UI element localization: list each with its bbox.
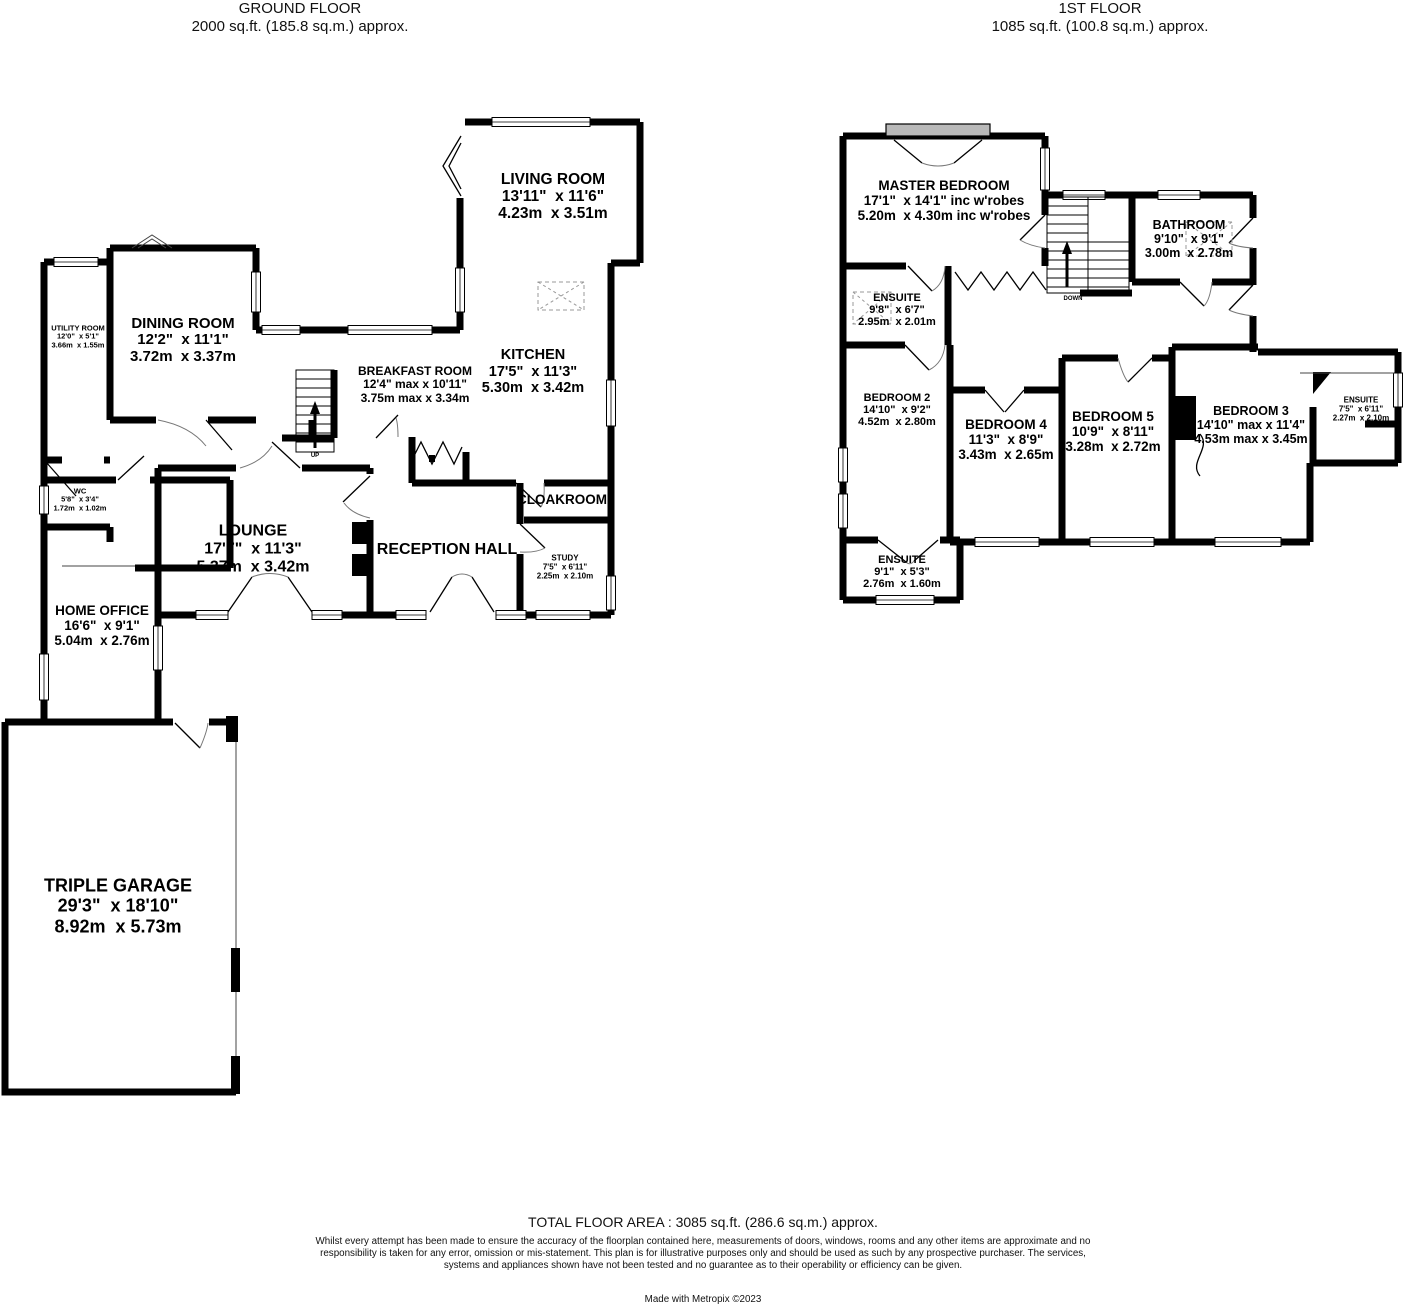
room-label-bathroom: BATHROOM9'10" x 9'1"3.00m x 2.78m	[1145, 190, 1233, 288]
chimney-icon	[1174, 396, 1196, 440]
floorplan-page: GROUND FLOOR 2000 sq.ft. (185.8 sq.m.) a…	[0, 0, 1406, 1313]
room-label-wc: WC5'8" x 3'4"1.72m x 1.02m	[54, 471, 107, 530]
door-leaf-icon	[1313, 372, 1331, 394]
room-label-ensuite-right: ENSUITE7'5" x 6'11"2.27m x 2.10m	[1333, 379, 1389, 442]
room-label-cloakroom: CLOAKROOM	[517, 462, 607, 538]
room-label-bedroom-5: BEDROOM 510'9" x 8'11"3.28m x 2.72m	[1065, 379, 1160, 485]
wardrobe-icon	[955, 272, 1046, 290]
stairs-up-label: UP	[311, 453, 319, 459]
stairs-down	[1047, 197, 1129, 293]
room-label-master-bedroom: MASTER BEDROOM17'1" x 14'1" inc w'robes5…	[858, 148, 1031, 254]
juliet-balcony-icon	[886, 124, 990, 136]
room-label-triple-garage: TRIPLE GARAGE29'3" x 18'10"8.92m x 5.73m	[44, 835, 192, 976]
room-label-study: STUDY7'5" x 6'11"2.25m x 2.10m	[537, 537, 593, 600]
room-label-ensuite-bottom: ENSUITE9'1" x 5'3"2.76m x 1.60m	[863, 529, 941, 615]
room-label-living-room: LIVING ROOM13'11" x 11'6"4.23m x 3.51m	[498, 136, 607, 258]
room-label-reception-hall: RECEPTION HALL	[377, 505, 517, 595]
credit-text: Made with Metropix ©2023	[303, 1294, 1103, 1305]
room-label-bedroom-2: BEDROOM 214'10" x 9'2"4.52m x 2.80m	[858, 367, 936, 453]
room-label-utility-room: UTILITY ROOM12'0" x 5'1"3.66m x 1.55m	[51, 308, 105, 367]
disclaimer-text: Whilst every attempt has been made to en…	[313, 1236, 1093, 1272]
stairs-down-label: DOWN	[1064, 296, 1083, 302]
room-label-kitchen: KITCHEN17'5" x 11'3"5.30m x 3.42m	[482, 315, 584, 429]
room-label-bedroom-4: BEDROOM 411'3" x 8'9"3.43m x 2.65m	[958, 387, 1053, 493]
skylight-icon	[538, 282, 584, 310]
room-label-breakfast-room: BREAKFAST ROOM12'4" max x 10'11"3.75m ma…	[358, 338, 472, 432]
room-label-ensuite-master: ENSUITE9'8" x 6'7"2.95m x 2.01m	[858, 267, 936, 353]
room-label-lounge: LOUNGE17'7" x 11'3"5.37m x 3.42m	[197, 486, 310, 611]
total-floor-area: TOTAL FLOOR AREA : 3085 sq.ft. (286.6 sq…	[303, 1214, 1103, 1230]
fireplace-icon	[352, 522, 371, 544]
room-label-dining-room: DINING ROOM12'2" x 11'1"3.72m x 3.37m	[130, 282, 236, 400]
room-label-bedroom-3: BEDROOM 314'10" max x 11'4"4.53m max x 3…	[1194, 376, 1307, 474]
room-label-home-office: HOME OFFICE16'6" x 9'1"5.04m x 2.76m	[54, 573, 149, 679]
